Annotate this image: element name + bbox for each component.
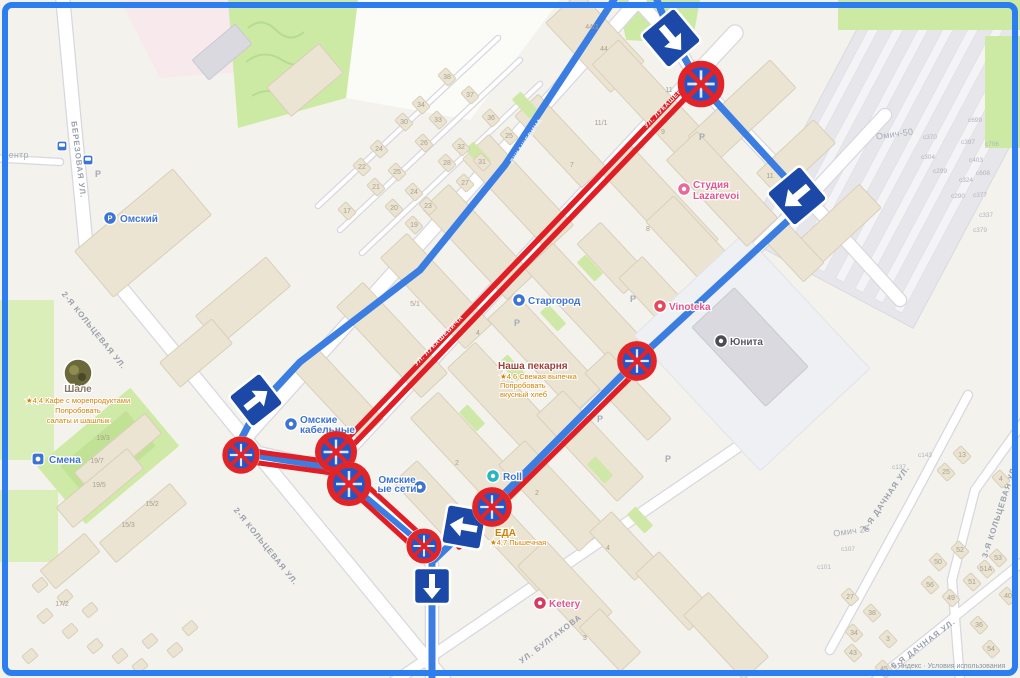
parking-mark: Р [630, 294, 636, 304]
no-stopping-sign[interactable] [328, 463, 370, 505]
plot-number: с324 [959, 177, 973, 184]
poi-subtext: Попробовать [55, 406, 101, 415]
poi-label[interactable]: Lazarevoi [693, 191, 739, 202]
plot-number: с699 [968, 117, 982, 124]
poi-label[interactable]: Студия [693, 180, 729, 191]
house-number: 9 [661, 129, 665, 136]
plot-number: с397 [961, 139, 975, 146]
house-number: 34 [850, 630, 858, 637]
plot-number: с299 [933, 168, 947, 175]
parking-mark: Р [597, 414, 603, 424]
poi-label[interactable]: Юнита [730, 337, 763, 348]
house-number: 56 [926, 582, 934, 589]
poi-marker[interactable]: Ketery [534, 597, 581, 611]
house-number: 3 [886, 636, 890, 643]
poi-marker[interactable]: Смена [32, 453, 81, 466]
house-number: 17/2 [55, 601, 69, 608]
house-number: 15/2 [145, 501, 159, 508]
parking-mark: Р [699, 132, 705, 142]
house-number: 45 [880, 666, 888, 673]
one-way-sign[interactable] [414, 568, 450, 604]
house-number: 27 [846, 594, 854, 601]
parking-mark: Р [514, 318, 520, 328]
house-number: 33 [434, 117, 442, 124]
house-number: 2 [455, 460, 459, 467]
house-number: 26 [420, 140, 428, 147]
house-number: 31 [478, 159, 486, 166]
house-number: 21 [372, 184, 380, 191]
house-number: 25 [393, 169, 401, 176]
house-number: 3 [583, 635, 587, 642]
plot-number: с101 [817, 564, 831, 571]
no-stopping-sign[interactable] [618, 342, 656, 380]
house-number: 13 [958, 452, 966, 459]
house-number: 44/1 [585, 24, 599, 31]
house-number: 50 [934, 559, 942, 566]
house-number: 11 [665, 87, 672, 94]
no-stopping-sign[interactable] [679, 62, 723, 106]
map-canvas[interactable]: центрБЕРЕЗОВАЯ УЛ.2-Я КОЛЬЦЕВАЯ УЛ.2-Я К… [0, 0, 1020, 678]
parking-mark: Р [665, 454, 671, 464]
poi-marker[interactable]: Старгород [513, 294, 582, 308]
house-number: 51 [968, 579, 976, 586]
plot-number: с107 [841, 546, 855, 553]
house-number: 24 [410, 189, 418, 196]
house-number: 4 [999, 476, 1003, 483]
plot-number: с377 [973, 192, 987, 199]
poi-marker[interactable]: Vinoteka [654, 300, 711, 314]
house-number: 54 [987, 646, 995, 653]
house-number: 25 [505, 133, 513, 140]
poi-marker[interactable]: РОмский [104, 212, 158, 226]
house-number: 24 [375, 146, 383, 153]
no-stopping-sign[interactable] [223, 437, 259, 473]
house-number: 38 [868, 610, 876, 617]
house-number: 27 [461, 180, 469, 187]
house-number: 38 [443, 74, 451, 81]
poi-subtext: ★4,4 Кафе с морепродуктами [26, 396, 130, 405]
plot-number: с143 [918, 452, 932, 459]
plot-number: с608 [976, 170, 990, 177]
house-number: 19/5 [92, 482, 106, 489]
poi-marker[interactable]: Roll [487, 470, 523, 484]
plot-number: с706 [985, 141, 999, 148]
house-number: 36 [487, 115, 495, 122]
house-number: 23 [424, 203, 432, 210]
house-number: 53 [994, 555, 1002, 562]
house-number: 7 [570, 162, 574, 169]
house-number: 52 [956, 547, 964, 554]
map-window: центрБЕРЕЗОВАЯ УЛ.2-Я КОЛЬЦЕВАЯ УЛ.2-Я К… [0, 0, 1020, 678]
poi-label[interactable]: Старгород [528, 296, 581, 307]
house-number: 32 [457, 144, 465, 151]
no-stopping-sign[interactable] [407, 529, 441, 563]
parking-mark: Р [95, 169, 101, 179]
plot-number: с403 [969, 157, 983, 164]
plot-number: с137 [892, 464, 906, 471]
poi-label[interactable]: Наша пекарня [498, 361, 568, 372]
poi-marker[interactable]: Юнита [715, 335, 764, 349]
poi-label[interactable]: Смена [49, 455, 81, 466]
plot-number: с304 [921, 154, 935, 161]
poi-subtext: ★4,7 Пышечная [490, 538, 546, 547]
house-number: 11/1 [594, 120, 607, 127]
poi-subtext: салаты и шашлык [47, 416, 110, 425]
poi-label[interactable]: Vinoteka [669, 302, 711, 313]
poi-label[interactable]: Шале [64, 384, 92, 395]
house-number: 40 [1004, 593, 1012, 600]
house-number: 19/7 [90, 458, 104, 465]
poi-label[interactable]: Омский [120, 214, 158, 225]
house-number: 15/3 [121, 522, 135, 529]
house-number: 28 [443, 160, 451, 167]
house-number: 43 [849, 650, 857, 657]
house-number: 5/1 [410, 301, 420, 308]
poi-label[interactable]: Roll [503, 472, 522, 483]
house-number: 44 [600, 46, 608, 53]
poi-subtext: ★4,6 Свежая выпечка [500, 372, 578, 381]
house-number: 20 [390, 205, 398, 212]
plot-number: с379 [973, 227, 987, 234]
house-number: 36 [975, 622, 983, 629]
poi-subtext: Попробовать [500, 381, 546, 390]
house-number: 8 [646, 226, 650, 233]
house-number: 4 [476, 330, 480, 337]
house-number: 25 [942, 469, 950, 476]
poi-label[interactable]: ые сети [378, 484, 417, 495]
house-number: 49 [947, 595, 955, 602]
bus-stop-icon[interactable] [83, 155, 93, 165]
svg-text:Р: Р [107, 214, 112, 223]
no-stopping-sign[interactable] [473, 488, 511, 526]
map-svg: центрБЕРЕЗОВАЯ УЛ.2-Я КОЛЬЦЕВАЯ УЛ.2-Я К… [0, 0, 1020, 678]
house-number: 51А [980, 566, 993, 573]
house-number: 2 [535, 490, 539, 497]
house-number: 4 [606, 545, 610, 552]
house-number: 22 [358, 164, 366, 171]
house-number: 19/3 [96, 435, 110, 442]
map-attribution[interactable]: © Яндекс · Условия использования [891, 662, 1006, 670]
plot-number: с290 [951, 193, 965, 200]
house-number: 19 [410, 222, 418, 229]
house-number: 30 [400, 119, 408, 126]
house-number: 11 [766, 173, 773, 180]
house-number: 37 [466, 92, 474, 99]
poi-label[interactable]: Ketery [549, 599, 581, 610]
plot-number: с370 [923, 134, 937, 141]
bus-stop-icon[interactable] [57, 141, 67, 151]
house-number: 17 [343, 208, 351, 215]
poi-subtext: вкусный хлеб [500, 390, 547, 399]
street-label: центр [3, 150, 28, 160]
plot-number: с337 [979, 212, 993, 219]
house-number: 34 [417, 102, 425, 109]
